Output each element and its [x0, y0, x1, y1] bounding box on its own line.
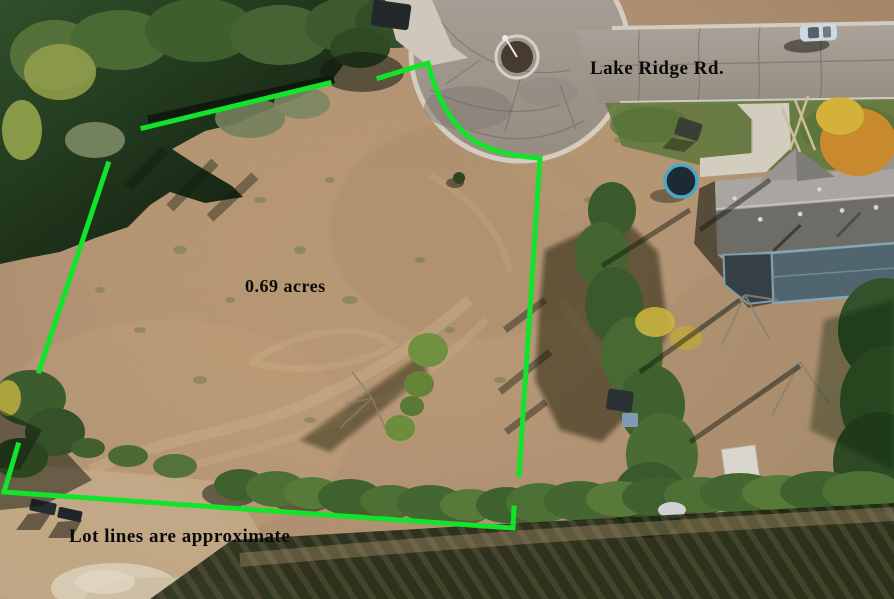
center-island	[496, 35, 538, 78]
blue-tarp	[622, 413, 638, 427]
road-name-label: Lake Ridge Rd.	[590, 58, 724, 80]
parked-truck	[370, 0, 411, 31]
disclaimer-label: Lot lines are approximate	[69, 526, 290, 548]
photo-scene	[0, 0, 894, 599]
lot-area-label: 0.69 acres	[245, 276, 326, 297]
aerial-photo: Lake Ridge Rd. 0.69 acres Lot lines are …	[0, 0, 894, 599]
dark-vehicle	[606, 388, 635, 412]
